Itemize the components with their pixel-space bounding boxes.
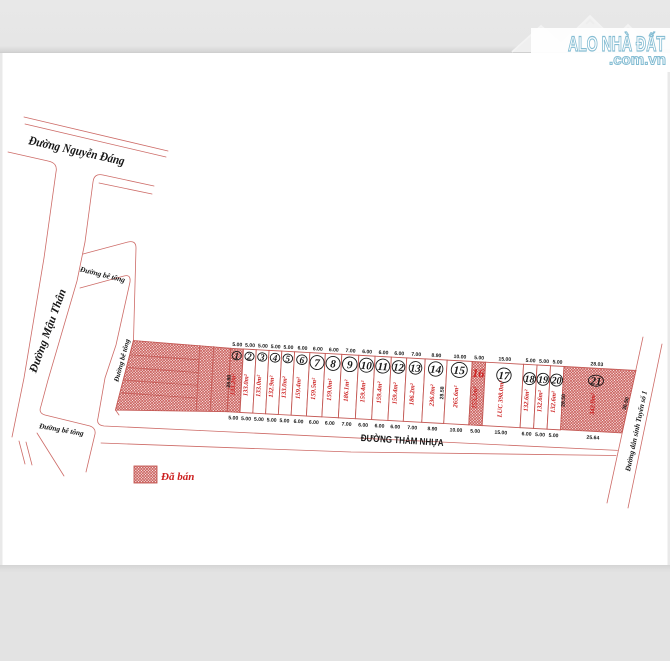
svg-text:6.00: 6.00 (309, 420, 319, 427)
svg-text:5.00: 5.00 (525, 358, 535, 365)
svg-text:28.80: 28.80 (226, 375, 233, 388)
svg-text:25.64: 25.64 (586, 435, 599, 442)
svg-text:3: 3 (259, 352, 266, 362)
svg-text:15.00: 15.00 (494, 430, 507, 437)
svg-text:16: 16 (472, 366, 485, 381)
svg-text:15.00: 15.00 (498, 356, 511, 363)
svg-text:5.00: 5.00 (474, 355, 484, 362)
svg-text:5.00: 5.00 (552, 359, 562, 366)
svg-text:8.90: 8.90 (431, 353, 441, 360)
svg-text:342.0m²: 342.0m² (589, 392, 597, 416)
svg-text:5.00: 5.00 (258, 343, 268, 350)
svg-text:236.0m²: 236.0m² (429, 383, 437, 407)
svg-text:265.6m²: 265.6m² (452, 384, 460, 408)
svg-text:5.00: 5.00 (539, 359, 549, 366)
svg-text:5.00: 5.00 (241, 416, 251, 423)
svg-text:6.00: 6.00 (362, 349, 372, 356)
svg-text:5.00: 5.00 (535, 432, 545, 439)
svg-text:6.00: 6.00 (374, 423, 384, 430)
svg-text:6.00: 6.00 (394, 351, 404, 358)
svg-text:5.00: 5.00 (279, 418, 289, 425)
svg-text:19: 19 (538, 375, 549, 387)
svg-text:186.1m²: 186.1m² (343, 379, 351, 402)
svg-text:133.0m²: 133.0m² (242, 373, 250, 396)
svg-text:6.00: 6.00 (293, 419, 303, 426)
svg-text:153.2m²: 153.2m² (471, 386, 479, 409)
svg-text:28.58: 28.58 (439, 386, 446, 399)
svg-text:8.90: 8.90 (427, 426, 437, 433)
svg-text:13: 13 (410, 363, 421, 375)
svg-text:10.00: 10.00 (449, 427, 462, 434)
svg-text:11: 11 (377, 361, 388, 374)
svg-text:5.00: 5.00 (271, 344, 281, 351)
svg-text:159.4m²: 159.4m² (376, 380, 384, 403)
svg-text:132.6m²: 132.6m² (536, 389, 544, 412)
svg-text:20: 20 (550, 375, 562, 387)
svg-text:6.00: 6.00 (329, 347, 339, 354)
svg-text:28.50: 28.50 (561, 394, 568, 407)
svg-text:7.00: 7.00 (407, 425, 417, 432)
svg-text:7.00: 7.00 (341, 421, 351, 428)
svg-text:10.00: 10.00 (453, 354, 466, 361)
svg-text:5.00: 5.00 (470, 428, 480, 435)
svg-text:18: 18 (524, 374, 535, 386)
svg-text:6.00: 6.00 (378, 350, 388, 357)
svg-text:5.00: 5.00 (267, 417, 277, 424)
svg-text:6.00: 6.00 (325, 421, 335, 428)
svg-text:6: 6 (299, 356, 305, 366)
svg-text:21: 21 (589, 375, 602, 388)
svg-text:28.03: 28.03 (590, 361, 603, 368)
svg-text:186.2m²: 186.2m² (408, 382, 416, 405)
svg-text:2: 2 (246, 351, 253, 361)
svg-text:132.6m²: 132.6m² (523, 388, 531, 411)
svg-text:Đã bán: Đã bán (160, 471, 194, 483)
svg-text:5.00: 5.00 (254, 417, 264, 424)
svg-text:.com.vn: .com.vn (609, 52, 666, 69)
svg-text:6.00: 6.00 (297, 345, 307, 352)
svg-text:159.0m²: 159.0m² (326, 378, 334, 401)
svg-text:14: 14 (430, 364, 442, 377)
svg-text:5.00: 5.00 (548, 433, 558, 440)
svg-text:7.00: 7.00 (411, 352, 421, 359)
svg-text:5.00: 5.00 (232, 342, 242, 349)
svg-text:5.00: 5.00 (228, 415, 238, 422)
svg-text:6.00: 6.00 (390, 424, 400, 431)
svg-text:7.00: 7.00 (345, 348, 355, 355)
svg-text:1: 1 (234, 351, 239, 361)
svg-text:15: 15 (453, 365, 465, 378)
svg-text:6.00: 6.00 (358, 422, 368, 429)
svg-text:159.4m²: 159.4m² (295, 376, 303, 399)
svg-text:4: 4 (272, 353, 279, 363)
svg-text:6.00: 6.00 (313, 346, 323, 353)
svg-text:10: 10 (361, 360, 373, 373)
svg-text:133.0m²: 133.0m² (255, 374, 263, 397)
svg-text:133.0m²: 133.0m² (281, 375, 289, 398)
svg-text:159.4m²: 159.4m² (359, 379, 367, 402)
svg-text:159.4m²: 159.4m² (392, 381, 400, 404)
svg-text:5.00: 5.00 (283, 345, 293, 352)
svg-text:132.9m²: 132.9m² (268, 374, 276, 397)
svg-text:5.00: 5.00 (245, 343, 255, 350)
svg-text:6.00: 6.00 (521, 431, 531, 438)
svg-text:159.5m²: 159.5m² (310, 377, 318, 400)
svg-text:12: 12 (393, 362, 405, 374)
svg-text:132.6m²: 132.6m² (550, 390, 558, 413)
